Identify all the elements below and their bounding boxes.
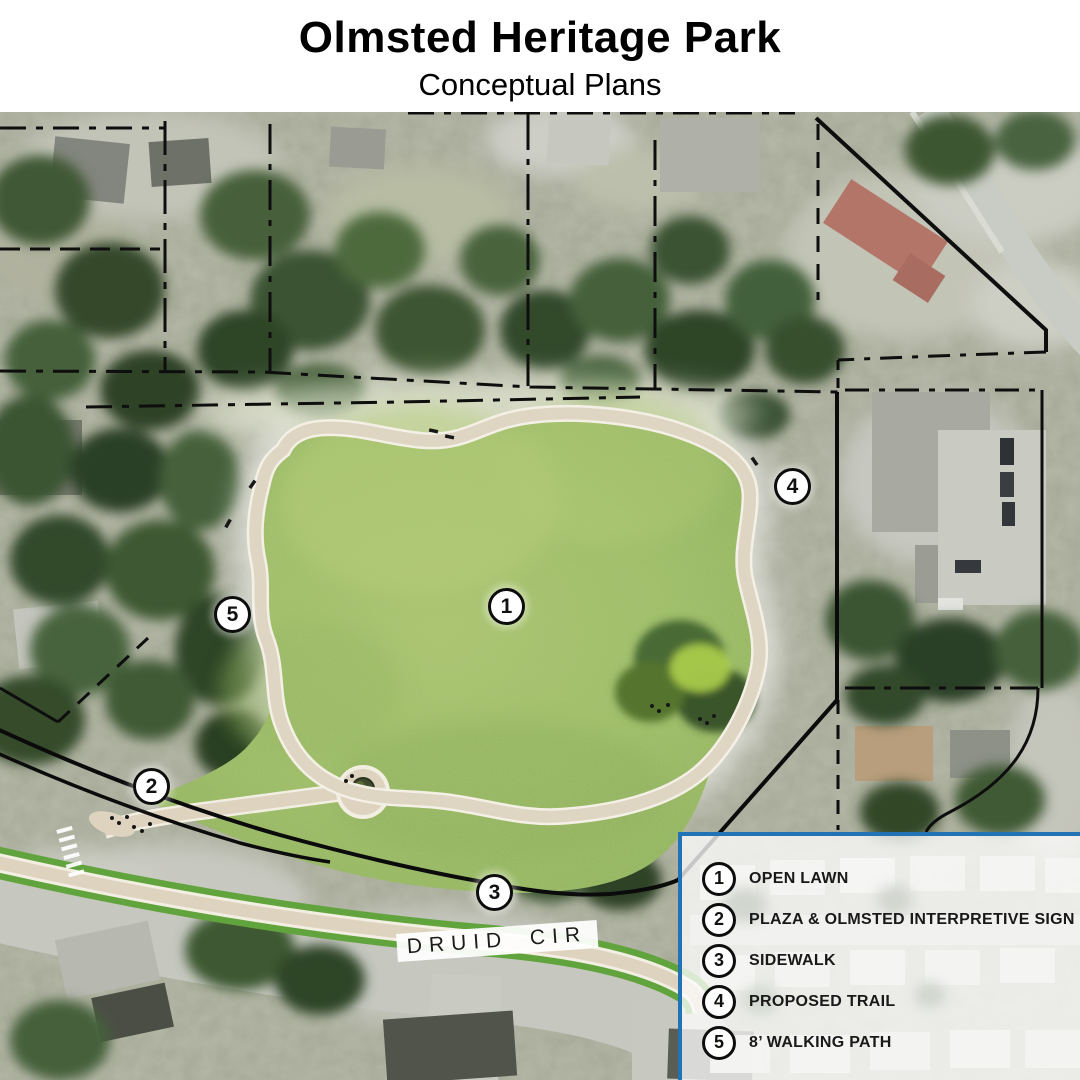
legend-item-proposed-trail: 4 PROPOSED TRAIL (702, 981, 1080, 1022)
page-title: Olmsted Heritage Park (299, 14, 781, 62)
legend-label-1: OPEN LAWN (749, 870, 849, 888)
map-marker-1: 1 (488, 588, 525, 625)
legend-item-plaza-sign: 2 PLAZA & OLMSTED INTERPRETIVE SIGN (702, 899, 1080, 940)
legend-number-2: 2 (702, 903, 736, 937)
legend-number-3: 3 (702, 944, 736, 978)
conceptual-plan-page: Olmsted Heritage Park Conceptual Plans (0, 0, 1080, 1080)
legend-label-3: SIDEWALK (749, 952, 836, 970)
map-marker-2: 2 (133, 768, 170, 805)
plan-header: Olmsted Heritage Park Conceptual Plans (0, 0, 1080, 112)
legend-item-sidewalk: 3 SIDEWALK (702, 940, 1080, 981)
plan-legend: 1 OPEN LAWN 2 PLAZA & OLMSTED INTERPRETI… (678, 832, 1080, 1080)
map-marker-4: 4 (774, 468, 811, 505)
legend-number-4: 4 (702, 985, 736, 1019)
legend-label-4: PROPOSED TRAIL (749, 993, 895, 1011)
legend-number-1: 1 (702, 862, 736, 896)
page-subtitle: Conceptual Plans (419, 68, 662, 102)
map-marker-5: 5 (214, 596, 251, 633)
legend-label-2: PLAZA & OLMSTED INTERPRETIVE SIGN (749, 911, 1075, 929)
legend-item-walking-path: 5 8’ WALKING PATH (702, 1022, 1080, 1063)
legend-item-open-lawn: 1 OPEN LAWN (702, 858, 1080, 899)
map-marker-3: 3 (476, 874, 513, 911)
legend-number-5: 5 (702, 1026, 736, 1060)
legend-label-5: 8’ WALKING PATH (749, 1034, 892, 1052)
